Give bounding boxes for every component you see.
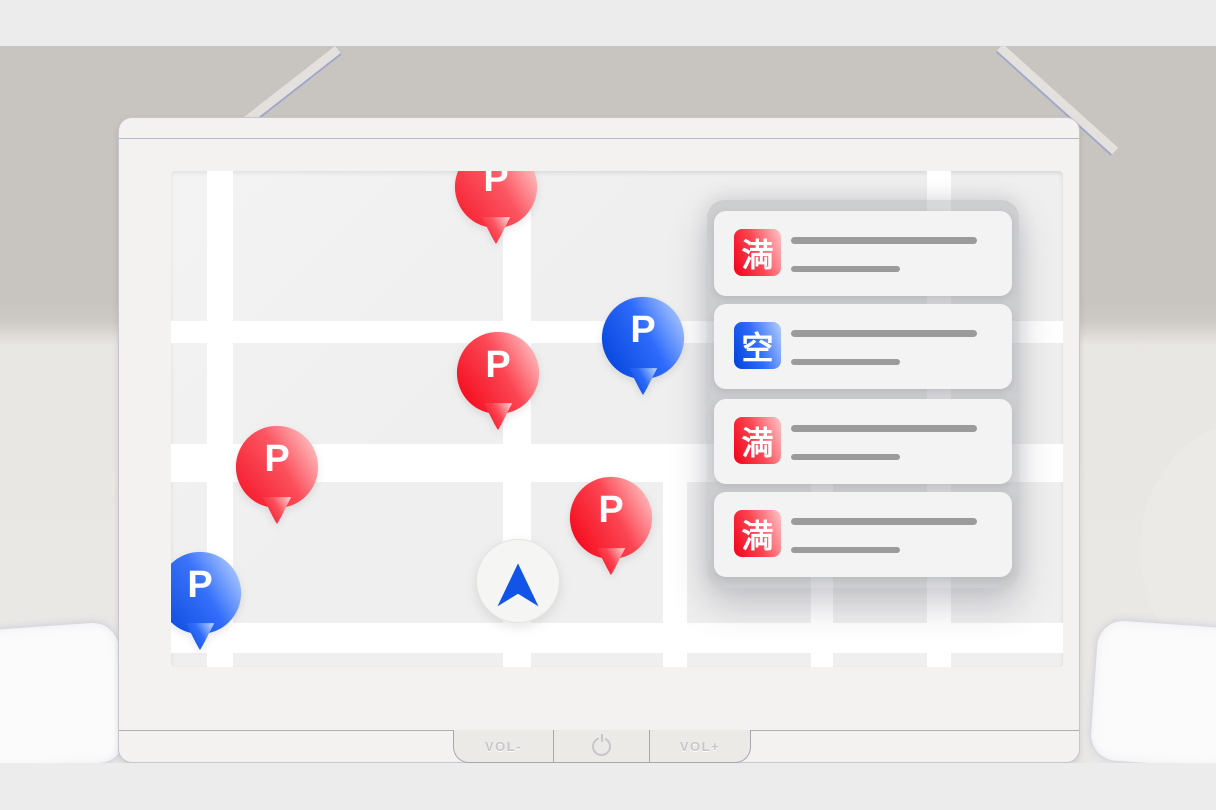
headliner-band [0, 0, 1216, 46]
status-badge-full: 満 [734, 229, 781, 276]
pin-letter: P [171, 551, 242, 619]
volume-down-button[interactable]: VOL- [453, 730, 554, 763]
parking-pin-vacant[interactable]: P [171, 551, 242, 655]
text-placeholder-line [791, 425, 977, 432]
parking-result-card[interactable]: 満 [714, 211, 1012, 296]
map-road [663, 444, 687, 667]
parking-pin-full[interactable]: P [569, 476, 653, 580]
pin-letter: P [569, 476, 653, 544]
text-placeholder-line [791, 518, 977, 525]
console-panel-right [1089, 619, 1216, 769]
text-placeholder-line [791, 359, 900, 365]
parking-pin-full[interactable]: P [454, 171, 538, 249]
text-placeholder-line [791, 237, 977, 244]
parking-result-card[interactable]: 満 [714, 492, 1012, 577]
status-badge-vacant: 空 [734, 322, 781, 369]
hardware-button-row: VOL- VOL+ [453, 730, 751, 763]
pin-letter: P [601, 296, 685, 364]
text-placeholder-line [791, 266, 900, 272]
pin-letter: P [235, 425, 319, 493]
parking-result-card[interactable]: 空 [714, 304, 1012, 389]
text-placeholder-line [791, 547, 900, 553]
pin-letter: P [456, 331, 540, 399]
parking-pin-full[interactable]: P [235, 425, 319, 529]
infotainment-unit: P P P P P P 満 [118, 117, 1080, 763]
current-location-marker[interactable] [476, 539, 560, 623]
text-placeholder-line [791, 454, 900, 460]
navigation-arrow-icon [477, 540, 559, 622]
status-badge-full: 満 [734, 510, 781, 557]
status-badge-full: 満 [734, 417, 781, 464]
power-icon [592, 737, 611, 756]
volume-up-button[interactable]: VOL+ [650, 730, 751, 763]
bezel-seam-top [119, 138, 1079, 139]
console-panel-left [0, 621, 127, 771]
map-display[interactable]: P P P P P P 満 [171, 171, 1063, 667]
parking-pin-vacant[interactable]: P [601, 296, 685, 400]
lower-console-band [0, 763, 1216, 810]
parking-result-card[interactable]: 満 [714, 399, 1012, 484]
parking-pin-full[interactable]: P [456, 331, 540, 435]
pin-letter: P [454, 171, 538, 213]
parking-results-panel: 満 空 満 満 [707, 200, 1019, 588]
text-placeholder-line [791, 330, 977, 337]
power-button[interactable] [554, 730, 650, 763]
